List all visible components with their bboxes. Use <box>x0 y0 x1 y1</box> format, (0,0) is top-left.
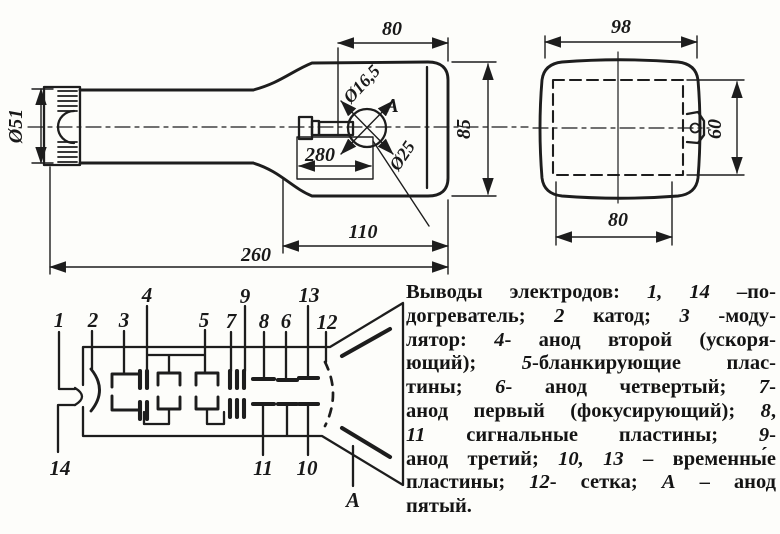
dim-label-80-top: 80 <box>382 18 402 40</box>
dim-label-60: 60 <box>704 119 726 139</box>
side-view: 80 110 260 280 Ø51 85 Ø16,5 Ø25 A <box>5 18 528 274</box>
tube-base-cap <box>44 87 80 165</box>
electrode-caption: Выводы электродов: 1, 14 –по-догреватель… <box>406 281 776 519</box>
caption-line: анод третий; 10, 13 – временны́е <box>406 448 776 472</box>
pin-label-4: 4 <box>141 283 153 307</box>
dim-label-110: 110 <box>349 221 378 243</box>
pin-label-13: 13 <box>299 283 320 307</box>
dim-label-dia25: Ø25 <box>385 137 419 175</box>
dim-label-dia51: Ø51 <box>5 109 27 144</box>
heater-loop <box>75 388 82 405</box>
pin-label-1: 1 <box>54 308 65 332</box>
dim-label-260: 260 <box>240 244 271 266</box>
caption-line: анод первый (фокусирующий); 8, <box>406 400 776 424</box>
front-view: 98 60 80 <box>533 16 744 245</box>
caption-line: тины; 6- анод четвертый; 7- <box>406 376 776 400</box>
pin-label-12: 12 <box>317 310 339 334</box>
dim-label-98: 98 <box>611 16 631 38</box>
modulator-and-cylinders <box>112 373 218 410</box>
pin-label-14: 14 <box>50 456 71 480</box>
schematic-envelope <box>83 303 403 485</box>
crt-technical-drawing: 80 110 260 280 Ø51 85 Ø16,5 Ø25 A 98 <box>0 0 780 534</box>
pin-label-6: 6 <box>281 309 292 333</box>
dim-dia51 <box>32 89 53 163</box>
dim-label-dia165: Ø16,5 <box>338 61 384 108</box>
grid-mesh-dashed <box>325 362 333 426</box>
pin-label-5: 5 <box>199 308 210 332</box>
caption-line: 11 сигнальные пластины; 9- <box>406 424 776 448</box>
electrode-schematic: 1 2 3 4 5 7 9 8 6 13 12 14 11 10 А <box>50 283 404 512</box>
pin-label-9: 9 <box>240 284 251 308</box>
caption-line: пятый. <box>406 495 776 519</box>
caption-line: догреватель; 2 катод; 3 -моду- <box>406 305 776 329</box>
pin-label-11: 11 <box>253 456 273 480</box>
caption-line: пластины; 12- сетка; А – анод <box>406 471 776 495</box>
pin-label-anode: А <box>344 488 360 512</box>
pin-label-2: 2 <box>87 308 99 332</box>
pin-label-8: 8 <box>259 309 270 333</box>
cathode-arc <box>91 369 100 411</box>
caption-line: ющий); 5-бланкирующие плас- <box>406 352 776 376</box>
caption-line: Выводы электродов: 1, 14 –по- <box>406 281 776 305</box>
dim-label-85: 85 <box>453 119 475 139</box>
dim-98 <box>545 36 697 58</box>
dim-label-80-front: 80 <box>608 209 628 231</box>
pin-label-3: 3 <box>118 308 130 332</box>
pin-label-7: 7 <box>226 309 238 333</box>
pin-label-10: 10 <box>297 456 319 480</box>
dim-label-280: 280 <box>304 144 335 166</box>
anode-label-side: A <box>383 95 398 117</box>
caption-line: лятор: 4- анод второй (ускоря- <box>406 329 776 353</box>
